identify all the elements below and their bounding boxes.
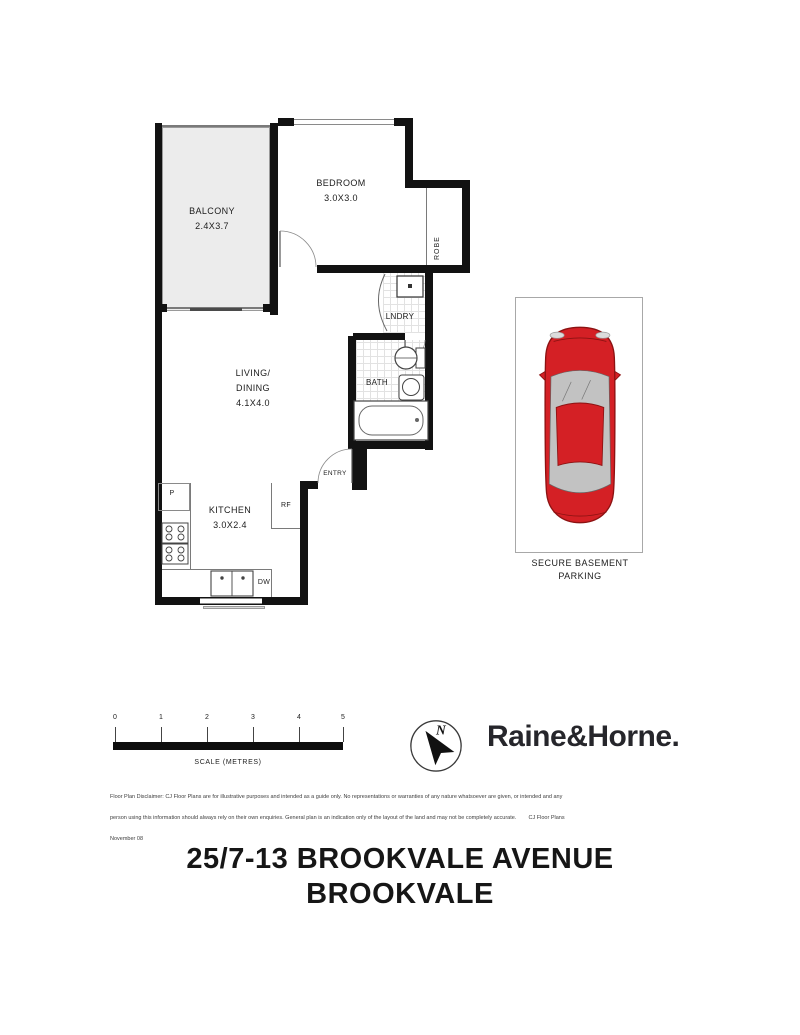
bedroom-label: BEDROOM 3.0X3.0 — [301, 176, 381, 206]
floor-plan: BALCONY 2.4X3.7 BEDROOM 3.0X3.0 ROBE LND… — [155, 118, 477, 613]
parking-caption: SECURE BASEMENT PARKING — [490, 557, 670, 583]
scale-tick-0: 0 — [109, 714, 121, 721]
disclaimer-line2: person using this information should alw… — [110, 815, 692, 822]
scale-tick-2: 2 — [201, 714, 213, 721]
scale-tick-4: 4 — [293, 714, 305, 721]
bedroom-name: BEDROOM — [301, 176, 381, 191]
dishwasher-label: DW — [255, 579, 273, 586]
fridge-label: RF — [277, 502, 295, 509]
parking-space-box — [515, 297, 643, 553]
balcony-label: BALCONY 2.4X3.7 — [172, 204, 252, 234]
floorplan-page: BALCONY 2.4X3.7 BEDROOM 3.0X3.0 ROBE LND… — [0, 0, 800, 1035]
kitchen-dims: 3.0X2.4 — [190, 518, 270, 533]
disclaimer-line1: Floor Plan Disclaimer: CJ Floor Plans ar… — [110, 794, 692, 801]
scale-bar-caption: SCALE (METRES) — [113, 759, 343, 766]
scale-bar-rule — [113, 742, 343, 750]
bedroom-door-arc — [280, 231, 316, 267]
car-icon — [536, 318, 624, 532]
scale-bar: 0 1 2 3 4 5 SCALE (METRES) — [113, 714, 347, 774]
kitchen-name: KITCHEN — [190, 503, 270, 518]
parking-caption-line1: SECURE BASEMENT — [490, 557, 670, 570]
cooktop-lower — [162, 544, 188, 564]
basin-bowl — [403, 379, 420, 396]
bath-label: BATH — [352, 378, 402, 387]
parking-caption-line2: PARKING — [490, 570, 670, 583]
pantry-label: P — [165, 490, 179, 497]
bedroom-dims: 3.0X3.0 — [301, 191, 381, 206]
balcony-dims: 2.4X3.7 — [172, 219, 252, 234]
robe-label: ROBE — [434, 195, 441, 260]
living-name-2: DINING — [213, 381, 293, 396]
laundry-label: LNDRY — [370, 312, 430, 321]
living-name-1: LIVING/ — [213, 366, 293, 381]
laundry-door-curve — [378, 274, 387, 331]
kitchen-label: KITCHEN 3.0X2.4 — [190, 503, 270, 533]
balcony-name: BALCONY — [172, 204, 252, 219]
scale-tick-1: 1 — [155, 714, 167, 721]
entry-door-arc — [318, 449, 352, 483]
entry-label: ENTRY — [315, 470, 355, 477]
brand-logo: Raine&Horne. — [487, 720, 717, 754]
north-compass-icon: N — [407, 714, 465, 774]
property-address: 25/7-13 BROOKVALE AVENUE BROOKVALE — [0, 842, 800, 912]
cooktop-upper — [162, 523, 188, 543]
address-line2: BROOKVALE — [0, 877, 800, 912]
scale-tick-5: 5 — [337, 714, 349, 721]
compass-north-letter: N — [435, 722, 447, 737]
living-dims: 4.1X4.0 — [213, 396, 293, 411]
address-line1: 25/7-13 BROOKVALE AVENUE — [0, 842, 800, 877]
scale-tick-3: 3 — [247, 714, 259, 721]
living-label: LIVING/ DINING 4.1X4.0 — [213, 366, 293, 411]
